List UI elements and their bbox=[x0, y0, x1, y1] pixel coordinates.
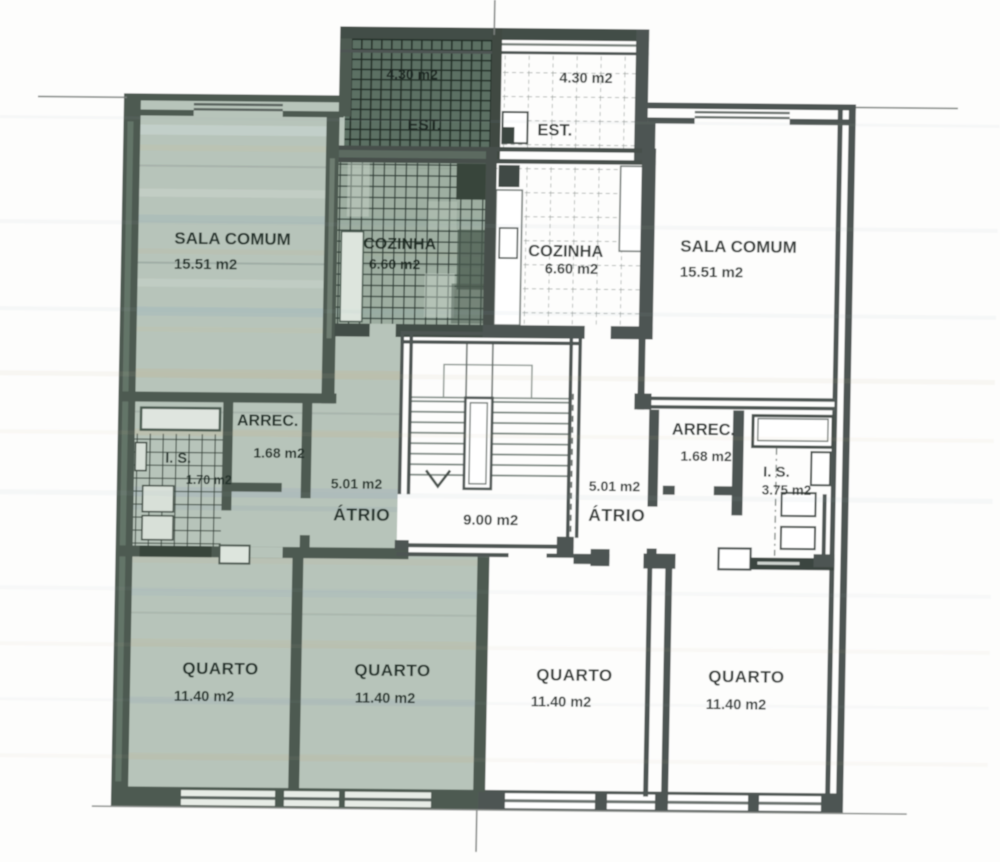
svg-text:11.40 m2: 11.40 m2 bbox=[355, 691, 416, 708]
svg-text:QUARTO: QUARTO bbox=[536, 665, 613, 685]
svg-text:5.01 m2: 5.01 m2 bbox=[331, 475, 383, 492]
svg-text:COZINHA: COZINHA bbox=[528, 242, 604, 261]
svg-text:EST.: EST. bbox=[537, 121, 572, 139]
svg-text:I. S.: I. S. bbox=[165, 451, 191, 467]
svg-text:QUARTO: QUARTO bbox=[182, 659, 259, 679]
svg-text:15.51 m2: 15.51 m2 bbox=[680, 264, 744, 282]
svg-text:1.70 m2: 1.70 m2 bbox=[186, 473, 232, 487]
svg-text:11.40 m2: 11.40 m2 bbox=[174, 689, 235, 706]
svg-text:QUARTO: QUARTO bbox=[354, 661, 431, 681]
svg-text:3.75 m2: 3.75 m2 bbox=[762, 483, 812, 498]
svg-text:15.51 m2: 15.51 m2 bbox=[174, 256, 238, 274]
svg-text:5.01 m2: 5.01 m2 bbox=[589, 478, 641, 495]
svg-text:6.60 m2: 6.60 m2 bbox=[545, 261, 599, 278]
svg-text:ÁTRIO: ÁTRIO bbox=[333, 503, 390, 525]
svg-text:9.00 m2: 9.00 m2 bbox=[463, 512, 518, 530]
svg-text:ARREC.: ARREC. bbox=[237, 412, 299, 430]
svg-text:SALA COMUM: SALA COMUM bbox=[174, 229, 291, 249]
svg-text:QUARTO: QUARTO bbox=[708, 667, 785, 687]
svg-text:SALA COMUM: SALA COMUM bbox=[680, 237, 797, 257]
svg-text:ÁTRIO: ÁTRIO bbox=[588, 504, 645, 526]
svg-text:4.30 m2: 4.30 m2 bbox=[559, 71, 613, 88]
svg-text:1.68 m2: 1.68 m2 bbox=[253, 445, 305, 462]
svg-text:I. S.: I. S. bbox=[763, 464, 790, 481]
svg-text:1.68 m2: 1.68 m2 bbox=[680, 448, 732, 465]
svg-text:COZINHA: COZINHA bbox=[363, 236, 437, 254]
svg-text:4.30 m2: 4.30 m2 bbox=[386, 66, 438, 83]
svg-text:6.60 m2: 6.60 m2 bbox=[369, 256, 421, 273]
